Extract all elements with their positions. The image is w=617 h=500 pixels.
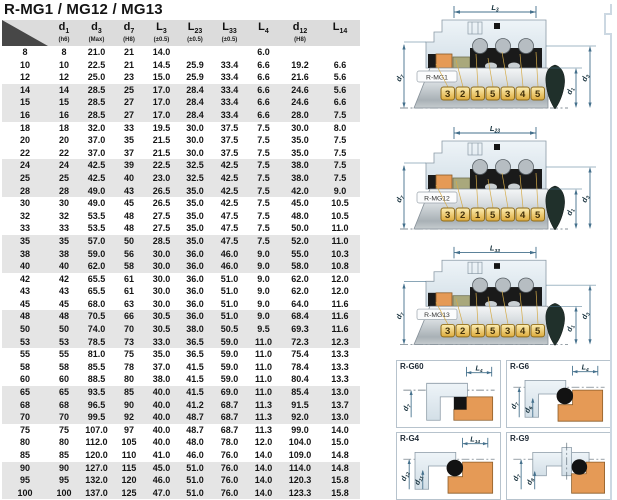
row-header-cell: 48 <box>2 310 48 323</box>
table-cell: 78 <box>113 361 145 374</box>
svg-text:2: 2 <box>460 89 465 100</box>
table-cell: 11.0 <box>247 386 280 399</box>
table-cell: 15.8 <box>320 487 360 500</box>
table-cell: 35.0 <box>280 147 320 160</box>
table-cell: 48.7 <box>178 424 212 437</box>
table-cell: 33.4 <box>212 71 247 84</box>
table-cell: 11.3 <box>247 424 280 437</box>
row-header-cell: 68 <box>2 399 48 412</box>
table-cell: 52.0 <box>280 235 320 248</box>
table-cell: 30.0 <box>145 260 178 273</box>
table-cell: 120.3 <box>280 474 320 487</box>
row-header-cell: 30 <box>2 197 48 210</box>
table-cell: 37.0 <box>80 134 113 147</box>
svg-text:d1: d1 <box>564 85 576 96</box>
row-header-cell: 58 <box>2 361 48 374</box>
table-cell: 48 <box>113 210 145 223</box>
table-cell: 24.6 <box>280 84 320 97</box>
table-cell: 49.0 <box>80 185 113 198</box>
table-cell: 9.0 <box>247 310 280 323</box>
table-cell: 21.0 <box>80 46 113 59</box>
table-row: 383859.05630.036.046.09.055.010.3 <box>2 248 360 261</box>
table-cell: 41.5 <box>178 373 212 386</box>
table-cell: 11.3 <box>247 411 280 424</box>
table-cell: 12.3 <box>320 336 360 349</box>
table-cell: 6.6 <box>247 84 280 97</box>
table-cell: 7.5 <box>320 172 360 185</box>
table-cell: 32.5 <box>178 159 212 172</box>
table-cell: 25.9 <box>178 71 212 84</box>
svg-text:5: 5 <box>490 89 496 100</box>
table-cell: 21 <box>113 46 145 59</box>
table-cell: 7.5 <box>247 122 280 135</box>
table-cell: 6.6 <box>320 96 360 109</box>
table-cell: 14 <box>48 84 80 97</box>
table-cell: 37 <box>113 147 145 160</box>
table-cell: 37.5 <box>212 134 247 147</box>
svg-text:d12: d12 <box>399 470 412 483</box>
table-row: 303049.04526.535.042.57.545.010.5 <box>2 197 360 210</box>
seal-diagram-r-mg1: R-MG1 3 2 1 5 3 4 5 L3 d1 d3 d7 <box>396 2 608 121</box>
table-cell: 7.5 <box>247 172 280 185</box>
table-cell: 59.0 <box>212 348 247 361</box>
table-cell: 41.5 <box>178 386 212 399</box>
table-cell: 17.0 <box>145 96 178 109</box>
table-cell: 35.0 <box>178 185 212 198</box>
table-cell: 73 <box>113 336 145 349</box>
table-row: 656593.58540.041.569.011.085.413.0 <box>2 386 360 399</box>
seal-face <box>453 57 470 68</box>
table-cell: 30.0 <box>145 248 178 261</box>
table-cell: 127.0 <box>80 462 113 475</box>
table-row: 161628.52717.028.433.46.628.07.5 <box>2 109 360 122</box>
table-cell <box>320 46 360 59</box>
o-ring <box>572 459 588 475</box>
table-cell: 28.5 <box>145 235 178 248</box>
table-cell: 47.5 <box>212 235 247 248</box>
table-row: 686896.59040.041.268.711.391.513.7 <box>2 399 360 412</box>
table-cell: 114.0 <box>280 462 320 475</box>
table-cell: 48.7 <box>178 411 212 424</box>
svg-text:L33: L33 <box>490 244 500 254</box>
table-cell: 28.4 <box>178 109 212 122</box>
column-header: d7(H8) <box>113 20 145 46</box>
table-cell: 42.5 <box>212 172 247 185</box>
dim-d7: d7 <box>511 459 523 489</box>
table-cell: 46.0 <box>212 248 247 261</box>
table-cell: 6.0 <box>247 46 280 59</box>
table-cell: 53.5 <box>80 222 113 235</box>
table-cell: 6.6 <box>247 96 280 109</box>
table-cell: 75.4 <box>280 348 320 361</box>
table-cell: 12.0 <box>320 285 360 298</box>
table-cell: 78.4 <box>280 361 320 374</box>
table-cell: 35 <box>48 235 80 248</box>
svg-text:3: 3 <box>505 210 510 221</box>
table-cell: 6.6 <box>247 71 280 84</box>
table-cell: 30.0 <box>145 298 178 311</box>
row-header-cell: 40 <box>2 260 48 273</box>
table-cell: 11.0 <box>247 361 280 374</box>
table-cell: 9.0 <box>247 248 280 261</box>
table-cell: 9.0 <box>247 260 280 273</box>
table-cell: 80.4 <box>280 373 320 386</box>
svg-text:d7: d7 <box>396 193 406 204</box>
table-cell: 7.5 <box>320 159 360 172</box>
table-cell: 11.6 <box>320 310 360 323</box>
dimension-table: d1(h6)d3(Max)d7(H8)L3(±0.5)L23(±0.5)L33(… <box>2 20 360 499</box>
table-cell: 40.0 <box>145 436 178 449</box>
table-cell: 59.0 <box>212 336 247 349</box>
table-row: 202037.03521.530.037.57.535.07.5 <box>2 134 360 147</box>
svg-text:d1: d1 <box>564 206 576 217</box>
table-cell: 51.0 <box>212 298 247 311</box>
table-cell: 38 <box>48 248 80 261</box>
table-cell: 35.0 <box>178 197 212 210</box>
table-cell: 24.6 <box>280 96 320 109</box>
table-row: 101022.52114.525.933.46.619.26.6 <box>2 59 360 72</box>
table-cell: 40.0 <box>145 411 178 424</box>
table-body: 8821.02114.06.0101022.52114.525.933.46.6… <box>2 46 360 499</box>
table-cell: 26.5 <box>145 197 178 210</box>
table-cell: 7.5 <box>247 185 280 198</box>
table-cell: 61 <box>113 285 145 298</box>
table-cell: 38.0 <box>178 323 212 336</box>
row-header-cell: 32 <box>2 210 48 223</box>
table-cell: 90 <box>48 462 80 475</box>
table-corner-cell <box>2 20 48 46</box>
column-header: d3(Max) <box>80 20 113 46</box>
table-cell: 63 <box>113 298 145 311</box>
table-cell: 7.5 <box>247 159 280 172</box>
table-cell: 36.5 <box>178 348 212 361</box>
table-cell: 107.0 <box>80 424 113 437</box>
table-cell: 51.0 <box>178 462 212 475</box>
table-cell: 21.6 <box>280 71 320 84</box>
table-cell: 81.0 <box>80 348 113 361</box>
table-cell: 59.0 <box>80 248 113 261</box>
table-cell: 35.0 <box>145 348 178 361</box>
table-cell: 28.5 <box>80 96 113 109</box>
svg-text:L3: L3 <box>491 3 499 14</box>
table-cell: 42 <box>48 273 80 286</box>
table-cell: 11.0 <box>320 235 360 248</box>
table-cell: 50 <box>113 235 145 248</box>
table-cell: 14.0 <box>320 424 360 437</box>
table-row: 8585120.011041.046.076.014.0109.014.8 <box>2 449 360 462</box>
table-cell: 9.5 <box>247 323 280 336</box>
table-cell: 49.0 <box>80 197 113 210</box>
table-cell: 9.0 <box>247 298 280 311</box>
table-cell: 35.0 <box>178 210 212 223</box>
table-cell: 62.0 <box>280 285 320 298</box>
table-cell: 78.0 <box>212 436 247 449</box>
column-header: L23(±0.5) <box>178 20 212 46</box>
table-row: 282849.04326.535.042.57.542.09.0 <box>2 185 360 198</box>
table-cell: 32.5 <box>178 172 212 185</box>
table-cell: 78.5 <box>80 336 113 349</box>
dim-d8: d8 <box>524 471 536 489</box>
table-cell: 48 <box>113 222 145 235</box>
o-ring <box>447 460 464 477</box>
row-header-cell: 53 <box>2 336 48 349</box>
table-cell: 132.0 <box>80 474 113 487</box>
table-cell: 21.5 <box>145 134 178 147</box>
table-cell: 7.5 <box>247 210 280 223</box>
row-header-cell: 24 <box>2 159 48 172</box>
svg-text:d7: d7 <box>396 72 406 83</box>
table-cell: 7.5 <box>320 134 360 147</box>
table-cell: 58 <box>113 260 145 273</box>
table-cell: 25 <box>113 84 145 97</box>
table-cell: 8 <box>48 46 80 59</box>
table-cell: 14.0 <box>145 46 178 59</box>
row-header-cell: 18 <box>2 122 48 135</box>
table-cell: 48.0 <box>280 210 320 223</box>
table-cell: 36.0 <box>178 298 212 311</box>
row-header-cell: 43 <box>2 285 48 298</box>
row-header-cell: 50 <box>2 323 48 336</box>
table-cell: 40 <box>48 260 80 273</box>
table-cell: 7.5 <box>247 197 280 210</box>
table-row: 323253.54827.535.047.57.548.010.5 <box>2 210 360 223</box>
table-cell: 76.0 <box>212 462 247 475</box>
part-number-tags: 3 2 1 5 3 4 5 <box>441 324 545 336</box>
table-cell: 9.0 <box>320 185 360 198</box>
table-cell: 13.0 <box>320 411 360 424</box>
table-row: 454568.06330.036.051.09.064.011.6 <box>2 298 360 311</box>
table-cell: 45 <box>113 197 145 210</box>
table-cell: 11.3 <box>247 399 280 412</box>
table-cell: 11.6 <box>320 298 360 311</box>
table-cell: 14.0 <box>247 487 280 500</box>
column-header: d12(H8) <box>280 20 320 46</box>
table-cell: 123.3 <box>280 487 320 500</box>
table-cell: 11.0 <box>247 348 280 361</box>
dim-l4: L4 <box>466 364 491 377</box>
table-cell: 27.5 <box>145 210 178 223</box>
row-header-cell: 100 <box>2 487 48 500</box>
seat-panel-r-g9: R-G9 d7 d8 <box>506 432 611 500</box>
table-cell: 92 <box>113 411 145 424</box>
table-row: 585885.57837.041.559.011.078.413.3 <box>2 361 360 374</box>
table-cell: 37.5 <box>212 147 247 160</box>
table-cell: 30.0 <box>145 285 178 298</box>
table-row: 242442.53922.532.542.57.538.07.5 <box>2 159 360 172</box>
table-cell: 69.0 <box>212 386 247 399</box>
table-cell: 99.0 <box>280 424 320 437</box>
table-row: 434365.56130.036.051.09.062.012.0 <box>2 285 360 298</box>
table-cell: 75 <box>48 424 80 437</box>
table-cell: 14.8 <box>320 449 360 462</box>
table-cell: 14.0 <box>247 474 280 487</box>
table-cell: 64.0 <box>280 298 320 311</box>
column-header: L4 <box>247 20 280 46</box>
table-cell: 76.0 <box>212 474 247 487</box>
table-cell: 19.2 <box>280 59 320 72</box>
table-cell: 15.8 <box>320 474 360 487</box>
table-cell: 105 <box>113 436 145 449</box>
table-cell: 50 <box>48 323 80 336</box>
column-header: L14 <box>320 20 360 46</box>
table-cell: 85 <box>113 386 145 399</box>
table-cell: 48.0 <box>178 436 212 449</box>
svg-text:L23: L23 <box>490 124 500 135</box>
table-cell: 13.3 <box>320 361 360 374</box>
table-cell: 72.3 <box>280 336 320 349</box>
table-cell: 42.5 <box>212 185 247 198</box>
table-row: 535378.57333.036.559.011.072.312.3 <box>2 336 360 349</box>
row-header-cell: 60 <box>2 373 48 386</box>
table-cell: 7.5 <box>320 147 360 160</box>
row-header-cell: 25 <box>2 172 48 185</box>
table-cell: 85 <box>48 449 80 462</box>
table-row: 707099.59240.048.768.711.392.013.0 <box>2 411 360 424</box>
table-cell: 14.5 <box>145 59 178 72</box>
row-header-cell: 42 <box>2 273 48 286</box>
table-cell: 45.0 <box>145 462 178 475</box>
table-cell: 74.0 <box>80 323 113 336</box>
table-cell: 13.3 <box>320 348 360 361</box>
svg-text:d1: d1 <box>564 323 577 333</box>
svg-text:4: 4 <box>520 89 526 100</box>
table-cell: 100 <box>48 487 80 500</box>
table-cell: 6.6 <box>247 59 280 72</box>
table-cell: 51.0 <box>178 487 212 500</box>
svg-text:1: 1 <box>475 210 481 221</box>
svg-text:4: 4 <box>520 326 526 336</box>
table-cell: 5.6 <box>320 71 360 84</box>
table-cell: 91.5 <box>280 399 320 412</box>
table-cell: 62.0 <box>80 260 113 273</box>
table-row: 252542.54023.032.542.57.538.07.5 <box>2 172 360 185</box>
adjacent-panel-edge <box>601 4 616 500</box>
table-cell: 39 <box>113 159 145 172</box>
table-cell: 112.0 <box>80 436 113 449</box>
table-cell: 7.5 <box>247 134 280 147</box>
table-cell: 28 <box>48 185 80 198</box>
table-cell: 30 <box>48 197 80 210</box>
table-cell: 59.0 <box>212 361 247 374</box>
row-header-cell: 45 <box>2 298 48 311</box>
table-cell: 42.0 <box>280 185 320 198</box>
column-header: L33(±0.5) <box>212 20 247 46</box>
row-header-cell: 20 <box>2 134 48 147</box>
table-cell: 68 <box>48 399 80 412</box>
table-cell: 36.0 <box>178 248 212 261</box>
table-cell: 48 <box>48 310 80 323</box>
table-cell: 58.0 <box>280 260 320 273</box>
table-cell: 45.0 <box>280 197 320 210</box>
table-cell: 37.0 <box>80 147 113 160</box>
row-header-cell: 70 <box>2 411 48 424</box>
svg-text:L4: L4 <box>475 364 482 374</box>
table-cell: 51.0 <box>212 285 247 298</box>
table-cell: 12.0 <box>247 436 280 449</box>
table-cell: 93.5 <box>80 386 113 399</box>
table-cell: 96.5 <box>80 399 113 412</box>
table-cell: 41.2 <box>178 399 212 412</box>
svg-text:1: 1 <box>475 326 480 336</box>
table-cell: 95 <box>48 474 80 487</box>
table-cell: 11.6 <box>320 323 360 336</box>
svg-text:L4: L4 <box>582 363 589 373</box>
table-cell: 32 <box>48 210 80 223</box>
table-cell: 104.0 <box>280 436 320 449</box>
row-header-cell: 12 <box>2 71 48 84</box>
table-cell: 51.0 <box>212 273 247 286</box>
row-header-cell: 65 <box>2 386 48 399</box>
seal-tip <box>546 65 565 109</box>
table-cell: 120.0 <box>80 449 113 462</box>
table-cell: 33.4 <box>212 109 247 122</box>
table-cell: 76.0 <box>212 449 247 462</box>
svg-text:5: 5 <box>535 210 541 221</box>
table-cell: 9.0 <box>247 285 280 298</box>
table-cell: 97 <box>113 424 145 437</box>
svg-text:5: 5 <box>490 210 496 221</box>
row-header-cell: 35 <box>2 235 48 248</box>
row-header-cell: 90 <box>2 462 48 475</box>
table-cell: 16 <box>48 109 80 122</box>
table-cell: 9.0 <box>247 273 280 286</box>
table-cell: 30.0 <box>145 273 178 286</box>
table-cell: 70 <box>113 323 145 336</box>
table-cell: 40.0 <box>145 399 178 412</box>
model-label: R-MG13 <box>424 312 450 319</box>
table-cell: 55.0 <box>280 248 320 261</box>
row-header-cell: 10 <box>2 59 48 72</box>
drive-pin <box>494 23 500 29</box>
table-cell: 61 <box>113 273 145 286</box>
table-cell: 30.0 <box>280 122 320 135</box>
table-row: 8821.02114.06.0 <box>2 46 360 59</box>
table-cell: 46.0 <box>178 449 212 462</box>
seat-label: R-G9 <box>510 434 529 443</box>
row-header-cell: 85 <box>2 449 48 462</box>
seat-panel-r-g6: R-G6 L4 d7 d6 <box>506 360 611 428</box>
table-cell: 43 <box>48 285 80 298</box>
table-cell: 30.5 <box>145 310 178 323</box>
seat-panel-r-g60: R-G60 L4 d7 <box>396 360 501 428</box>
table-row: 353557.05028.535.047.57.552.011.0 <box>2 235 360 248</box>
svg-text:4: 4 <box>520 210 526 221</box>
table-cell: 92.0 <box>280 411 320 424</box>
svg-text:3: 3 <box>505 326 510 336</box>
table-cell: 68.0 <box>80 298 113 311</box>
table-cell: 80 <box>113 373 145 386</box>
table-cell: 70 <box>48 411 80 424</box>
table-cell: 17.0 <box>145 84 178 97</box>
table-cell: 109.0 <box>280 449 320 462</box>
table-cell: 33.4 <box>212 84 247 97</box>
table-cell: 18 <box>48 122 80 135</box>
row-header-cell: 22 <box>2 147 48 160</box>
table-cell: 13.0 <box>320 386 360 399</box>
square-ring <box>454 397 467 410</box>
table-cell: 55 <box>48 348 80 361</box>
svg-text:5: 5 <box>535 89 541 100</box>
table-cell: 6.6 <box>320 59 360 72</box>
table-cell: 75 <box>113 348 145 361</box>
table-cell: 42.5 <box>212 159 247 172</box>
part-number-tags: 3 2 1 5 3 4 5 <box>441 208 545 221</box>
table-cell: 36.5 <box>178 336 212 349</box>
table-cell: 33.4 <box>212 96 247 109</box>
table-cell <box>178 46 212 59</box>
table-cell: 42.5 <box>80 159 113 172</box>
table-row: 606088.58038.041.559.011.080.413.3 <box>2 373 360 386</box>
